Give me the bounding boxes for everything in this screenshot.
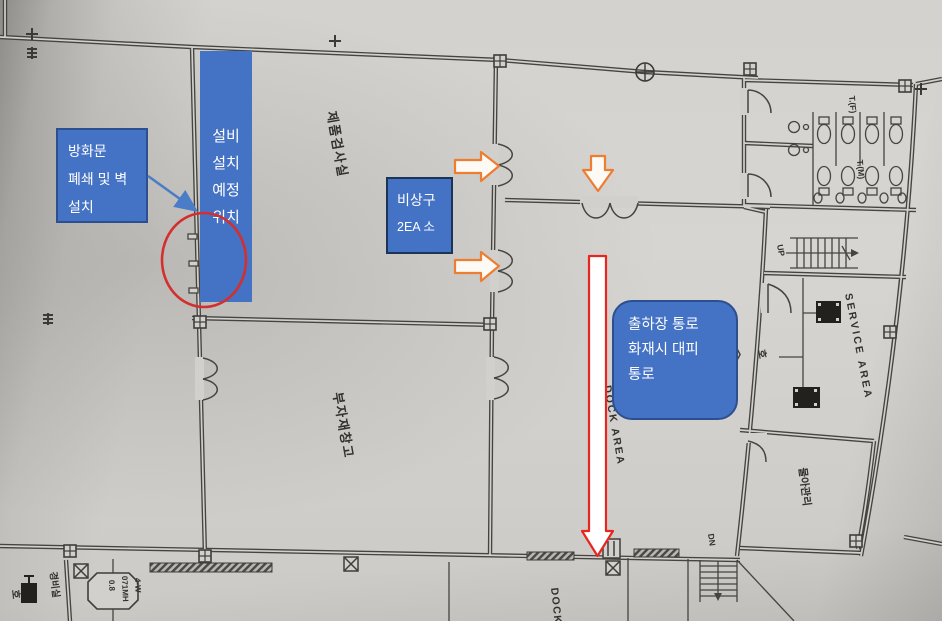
orange-arrow-right-upper[interactable] — [455, 152, 499, 181]
orange-arrow-right-lower[interactable] — [455, 252, 499, 281]
red-circle-annotation[interactable] — [162, 213, 246, 307]
callout-connector-arrow[interactable] — [148, 176, 194, 209]
annotation-overlay-svg — [0, 0, 942, 621]
annotated-floor-plan: 4-W 4-W 071MH 0.8 호 호 제품검사실 부자재창고 경비실 물아… — [0, 0, 942, 621]
red-evacuation-arrow[interactable] — [582, 256, 613, 556]
orange-arrow-down[interactable] — [583, 156, 613, 191]
